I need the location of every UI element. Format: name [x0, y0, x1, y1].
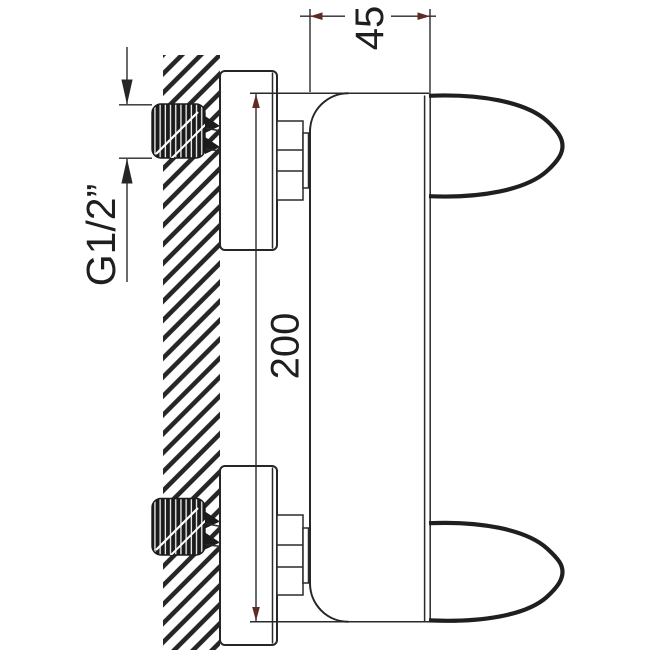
arrowhead-left — [310, 12, 323, 20]
body-left-edge — [310, 93, 349, 622]
connector-step — [303, 133, 309, 188]
dimension-thread-label: G1/2” — [78, 184, 124, 287]
connector-block — [277, 121, 303, 200]
threaded-fitting-bottom — [152, 499, 207, 557]
escutcheon-plate-top — [220, 71, 277, 250]
stepped-connector-bottom — [277, 515, 309, 595]
dimension-200-label: 200 — [263, 313, 307, 380]
dimension-g12: G1/2” — [78, 47, 152, 286]
arrowhead-right — [418, 12, 431, 20]
plate-outline — [220, 466, 277, 645]
dimension-45: 45 — [300, 6, 436, 94]
threaded-fitting-top — [152, 104, 207, 160]
escutcheon-plate-bottom — [220, 466, 277, 645]
connector-step — [303, 528, 309, 583]
handle-lever-bottom — [429, 523, 563, 621]
shower-mixer-technical-drawing: 45 200 G1/2” — [0, 0, 650, 650]
stepped-connector-top — [277, 121, 309, 200]
technical-drawing-page: 45 200 G1/2” — [0, 0, 650, 650]
dimension-45-label: 45 — [348, 6, 392, 51]
connector-block — [277, 515, 303, 595]
arrowhead-down — [121, 80, 132, 105]
handle-lever-top — [429, 95, 563, 196]
arrowhead-up — [121, 159, 132, 184]
plate-outline — [220, 71, 277, 250]
